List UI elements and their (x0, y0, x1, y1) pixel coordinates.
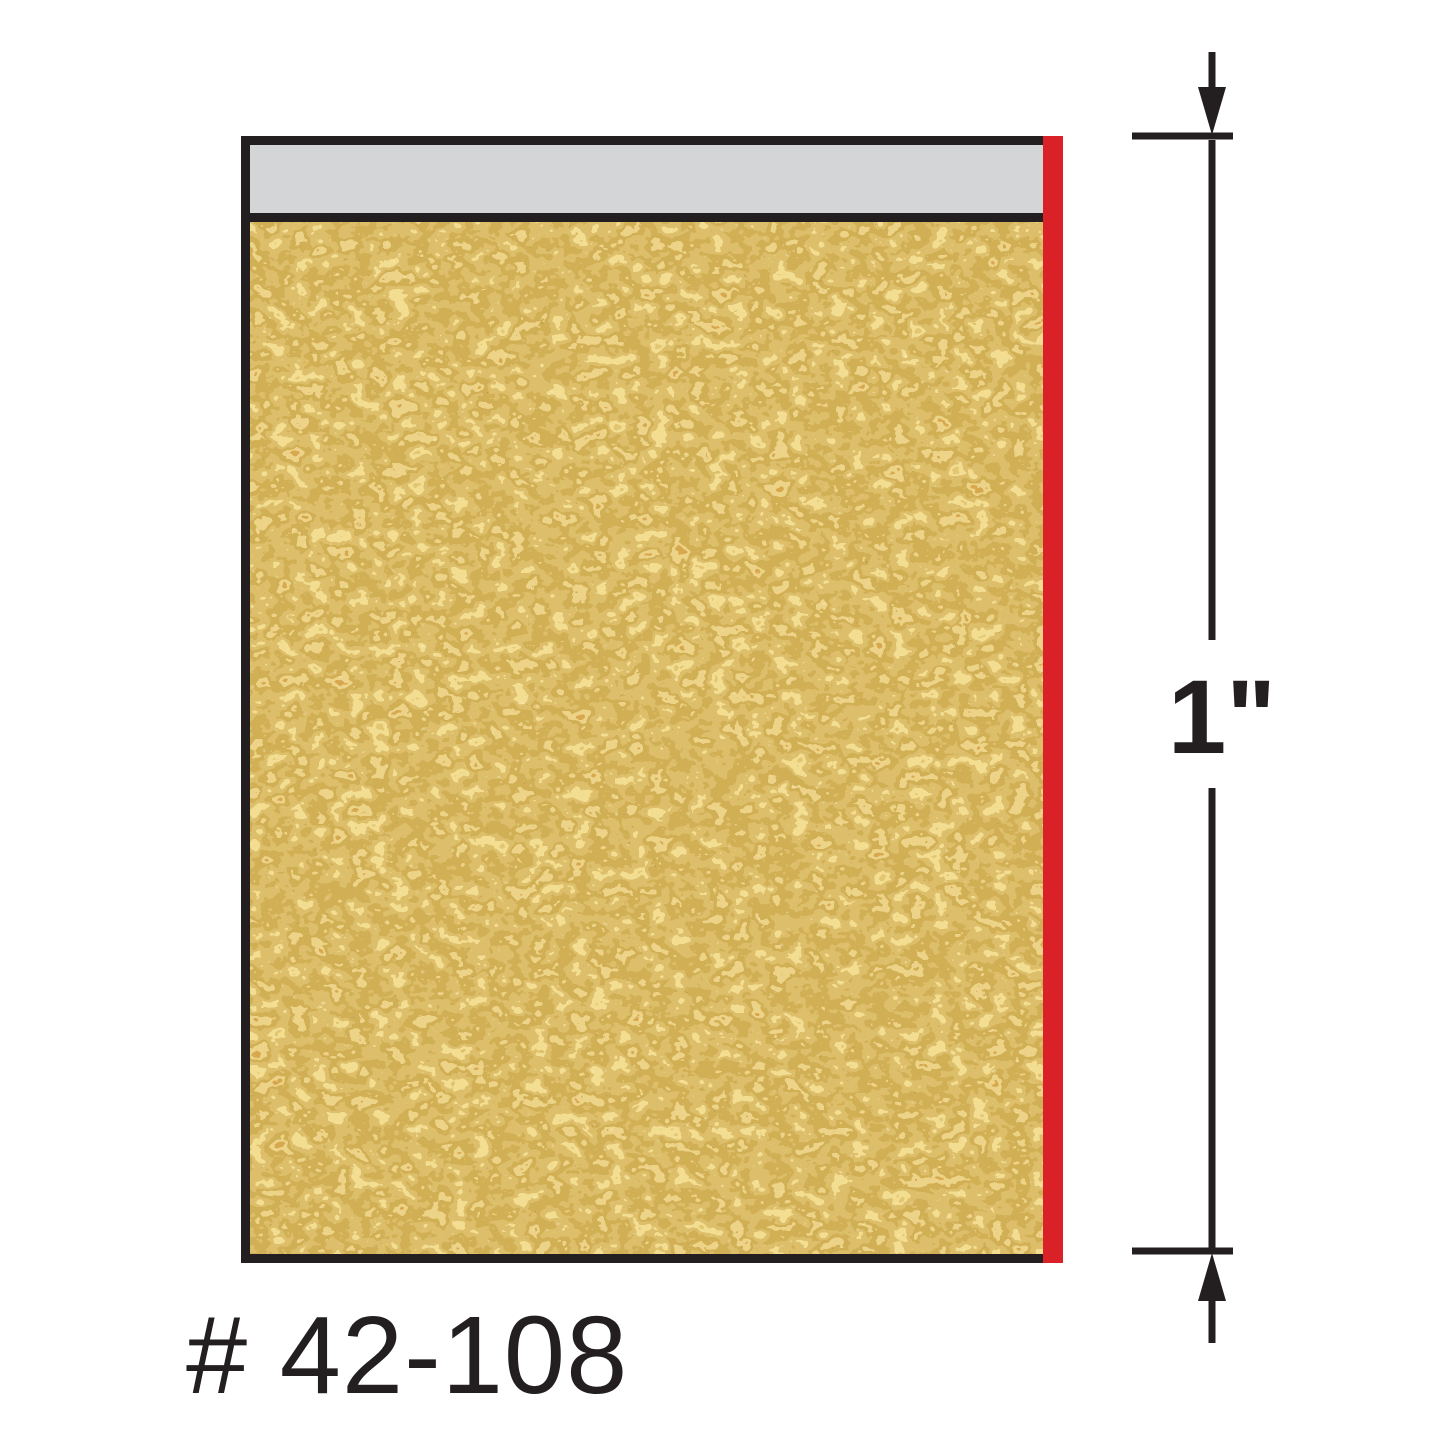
laminate-divider-line (250, 213, 1043, 222)
particleboard-core (250, 222, 1043, 1254)
part-number-label: # 42-108 (186, 1292, 628, 1419)
particleboard-texture (250, 222, 1043, 1254)
dimension-arrow-up-icon (1198, 1253, 1226, 1301)
diagram-canvas: 1" # 42-108 (0, 0, 1445, 1445)
laminate-top-layer (250, 145, 1043, 213)
trimmed-edge-red-strip (1043, 136, 1063, 1263)
particleboard-texture-svg (250, 222, 1043, 1254)
dimension-label: 1" (1122, 656, 1322, 780)
dimension-arrow-down-icon (1198, 87, 1226, 135)
board-cross-section (241, 136, 1043, 1263)
